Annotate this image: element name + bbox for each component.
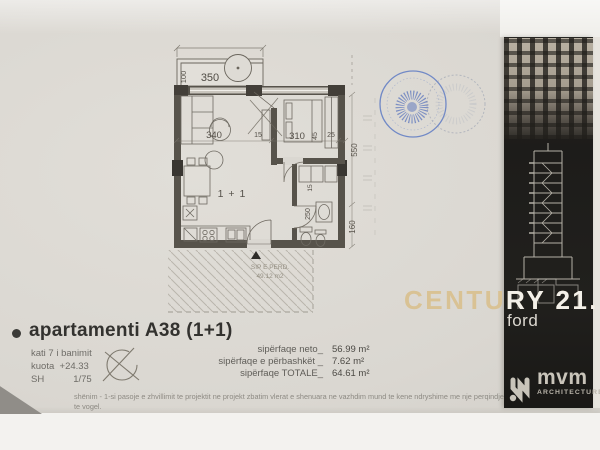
walls [172,85,347,249]
area-row-totale: sipërfaqe TOTALE_ 64.61 m² [152,368,382,380]
area-row-perbashket: sipërfaqe e përbashkët _ 7.62 m² [152,356,382,368]
dim-balcony-depth: 100 [179,71,188,84]
apartment-title: apartamenti A38 (1+1) [29,320,233,342]
footnote-1: shënim - 1-si pasoje e zhvillimit te pro… [74,392,504,412]
area-value: 64.61 m² [332,368,382,380]
doors [247,92,316,244]
photographed-floorplan-page: SIP E PERD. 49.12 m2 100 350 [0,0,600,450]
dim-bedroom-width: 310 [289,131,305,142]
title-bullet [12,329,21,338]
mvm-logo-icon [509,371,535,403]
dim-bath-depth: 250 [305,208,312,220]
dim-partition: 15 [254,132,262,139]
dim-niche: 45 [312,132,319,140]
area-value: 56.99 m² [332,344,382,356]
dim-ext-wall: 25 [327,132,335,139]
crossed-circle-mark [103,348,139,381]
dim-height-lower: 160 [348,220,357,234]
area-label: sipërfaqe TOTALE_ [152,368,323,380]
area-label: sipërfaqe neto_ [152,344,323,356]
dim-height-upper: 550 [350,143,359,157]
brochure-strip: mvm ARCHITECTURE [504,37,593,408]
mvm-logo: mvm ARCHITECTURE [509,369,593,403]
dim-balcony-width: 350 [201,72,219,84]
paper-bottom-margin [0,413,600,450]
living-room-furniture [181,96,270,242]
notary-stamp-faint [427,75,485,133]
dim-bath-wall: 15 [307,184,314,192]
mvm-logo-subtext: ARCHITECTURE [537,389,600,396]
notary-stamp-blue [380,71,446,137]
area-row-neto: sipërfaqe neto_ 56.99 m² [152,344,382,356]
hatch-area-label: SIP E PERD. [251,264,289,271]
hatch-area-value: 49.12 m2 [256,273,283,280]
paper-top-margin [500,0,600,37]
area-label: sipërfaqe e përbashkët _ [152,356,323,368]
apartment-info-lines: kati 7 i banimit kuota +24.33 SH 1/75 [31,348,92,386]
area-summary-table: sipërfaqe neto_ 56.99 m² sipërfaqe e për… [152,344,382,379]
building-photo [504,38,593,139]
dim-offset: 40 [341,204,347,211]
hatched-common-area: SIP E PERD. 49.12 m2 [168,250,313,312]
area-value: 7.62 m² [332,356,382,368]
paper-right-edge [593,37,600,408]
mvm-logo-text: mvm [537,367,588,389]
dim-living-width: 340 [206,130,222,141]
century21-office-name: ford [507,311,538,331]
room-label: 1 + 1 [218,188,247,200]
